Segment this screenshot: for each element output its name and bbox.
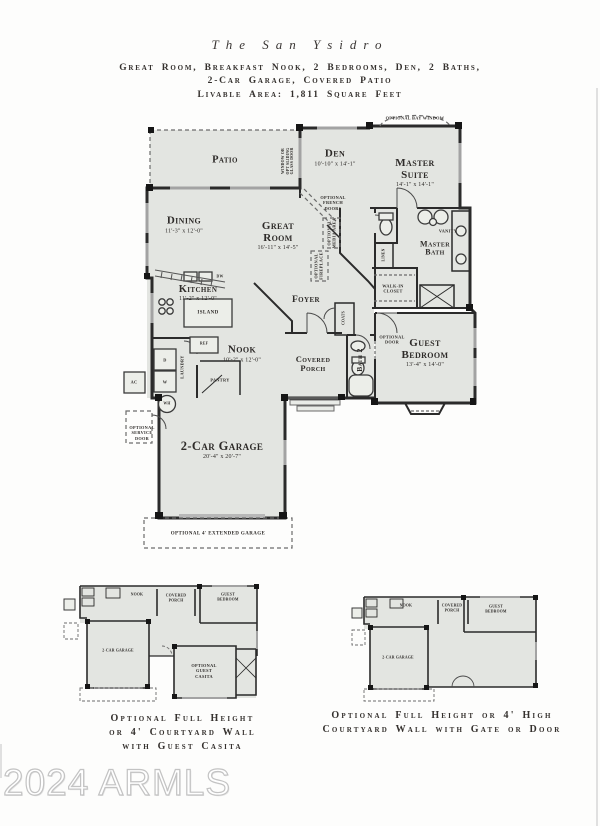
porch-steps	[285, 398, 342, 411]
optional-media-area-label: Optional Media Area	[327, 218, 338, 249]
floor-plan-page: { "header": { "title": "The San Ysidro",…	[0, 0, 600, 826]
optional-fireplace-label: Optional Fireplace	[314, 252, 325, 280]
room-label-patio: Patio	[212, 154, 238, 165]
mini-right-nook-label: Nook	[400, 604, 412, 609]
optional-bay-window-label: Optional Bay Window	[386, 115, 445, 120]
mini-right-garage-label: 2-Car Garage	[382, 656, 413, 661]
linen-label: Linen	[382, 248, 387, 261]
ref-label: Ref	[200, 342, 208, 347]
master-toilet	[380, 219, 392, 235]
stove-burner	[159, 308, 165, 314]
room-label-den: Den 10'-10" x 14'-1"	[314, 149, 355, 168]
stove-burner	[159, 299, 165, 305]
island-label: Island	[197, 310, 218, 315]
room-label-great-room: Great Room 16'-11" x 14'-5"	[250, 221, 306, 251]
master-sink-center	[430, 219, 437, 226]
dishwasher-label: DW	[217, 275, 224, 280]
master-toilet-tank	[379, 213, 393, 220]
caption-casita: Optional Full Height or 4' Courtyard Wal…	[70, 712, 295, 754]
room-label-bath2: Bath 2	[356, 348, 364, 372]
mini-left-fills	[80, 586, 257, 698]
room-label-master-bath: Master Bath	[414, 241, 456, 258]
room-label-garage: 2-Car Garage 20'-4" x 20'-7"	[181, 440, 264, 460]
optional-french-doors-label: Optional French Doors	[320, 195, 345, 211]
laundry-label: Laundry	[179, 355, 184, 378]
livable-area: Livable Area: 1,811 Square Feet	[0, 84, 600, 102]
optional-extended-garage-label: Optional 4' Extended Garage	[171, 531, 266, 536]
room-label-covered-porch: Covered Porch	[289, 355, 337, 373]
water-heater-label: WH	[163, 402, 170, 407]
vanity-sink-1	[456, 226, 466, 236]
room-label-guest-bedroom: Guest Bedroom 13'-4" x 14'-0"	[392, 338, 458, 368]
mini-right-porch-label: Covered Porch	[442, 603, 462, 612]
vanity-label: Vanity	[439, 228, 457, 233]
dryer-label: D	[163, 357, 166, 362]
vanity-sink-2	[456, 254, 466, 264]
armls-watermark: 2024 ARMLS	[3, 762, 231, 804]
walk-in-closet-label: Walk-In Closet	[376, 284, 410, 295]
plan-title-text: The San Ysidro	[212, 37, 389, 52]
room-label-dining: Dining 11'-3" x 12'-0"	[165, 216, 203, 235]
mini-left-nook-label: Nook	[131, 593, 143, 598]
optional-service-door-label: Optional Service Door	[129, 425, 154, 441]
mini-left-porch-label: Covered Porch	[166, 593, 186, 602]
room-label-nook: Nook 10'-2" x 12'-0"	[223, 345, 261, 364]
mini-left-garage-label: 2-Car Garage	[102, 649, 133, 654]
scan-edge-left	[0, 744, 2, 778]
room-label-kitchen: Kitchen 11'-2" x 12'-0"	[179, 284, 218, 302]
mini-left-ac	[64, 599, 75, 610]
scan-edge-right	[596, 88, 598, 826]
mini-plan-casita: Nook Covered Porch Guest Bedroom 2-Car G…	[62, 583, 272, 708]
room-label-foyer: Foyer	[292, 296, 320, 306]
mini-left-guest-bedroom-label: Guest Bedroom	[217, 592, 238, 601]
mini-plan-gate: Nook Covered Porch Guest Bedroom 2-Car G…	[350, 594, 550, 706]
window-note-label: Window or Opt Sliding Glass Door	[281, 148, 295, 175]
ac-label: AC	[131, 379, 138, 384]
stove-burner	[167, 299, 173, 305]
washer-label: W	[163, 379, 168, 384]
stove-burner	[167, 308, 173, 314]
mini-right-ac	[352, 608, 362, 618]
mini-right-guest-bedroom-label: Guest Bedroom	[485, 604, 506, 613]
mini-left-casita-label: Optional Guest Casita	[191, 663, 216, 679]
main-floor-plan: Patio Window or Opt Sliding Glass Door D…	[122, 103, 482, 565]
bath2-tub	[349, 375, 373, 396]
plan-title: The San Ysidro	[0, 36, 600, 54]
caption-gate: Optional Full Height or 4' High Courtyar…	[322, 709, 562, 737]
room-label-master-suite: Master Suite 14'-1" x 14'-1"	[384, 158, 446, 188]
coats-label: Coats	[342, 311, 347, 325]
pantry-label: Pantry	[210, 377, 229, 382]
